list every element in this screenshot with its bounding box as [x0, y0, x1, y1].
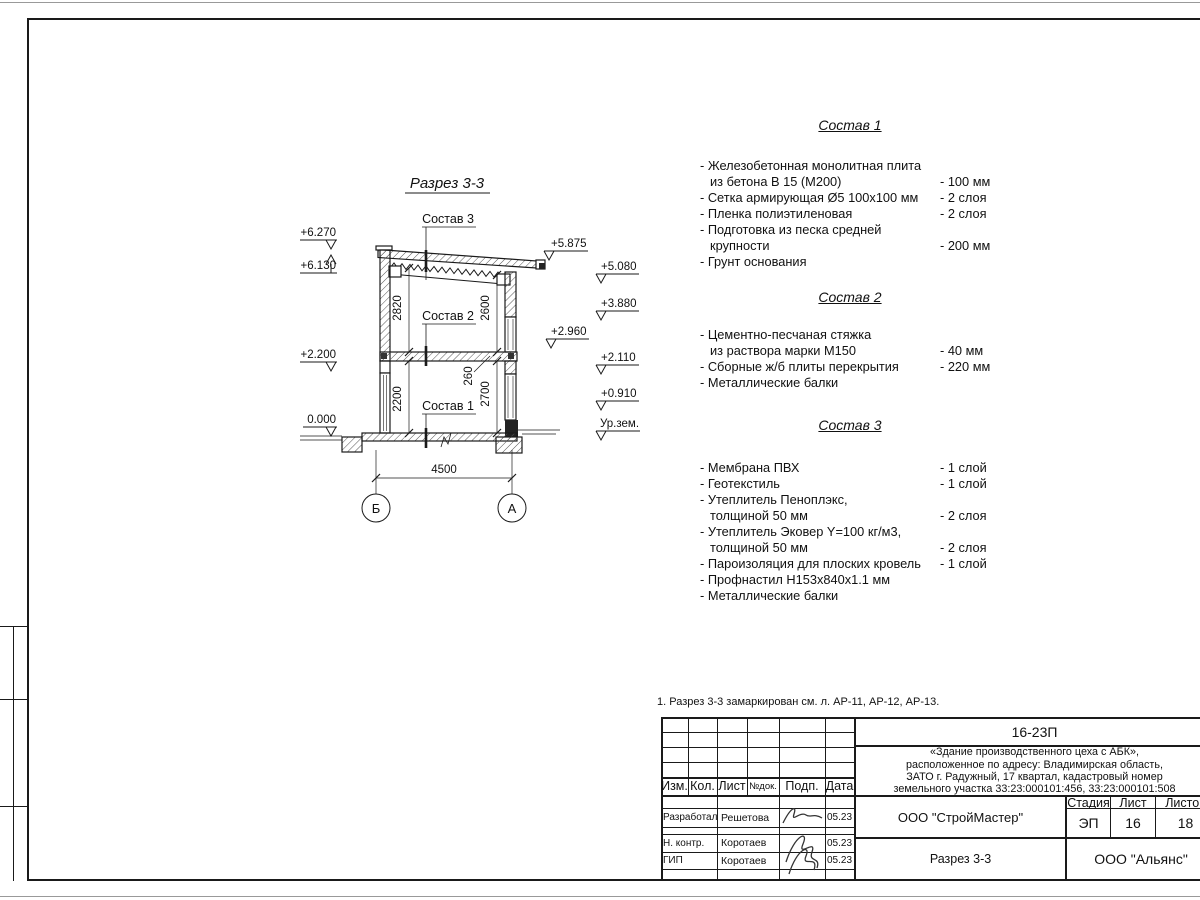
dimension-label: 2200 — [392, 386, 404, 412]
composition-items: - Цементно-песчаная стяжкаиз раствора ма… — [700, 327, 1000, 391]
tb-col-ndok: №док. — [747, 777, 779, 795]
tb-col-kol: Кол. — [688, 777, 717, 795]
dimension-label: 2700 — [480, 381, 492, 407]
tb-role: Н. контр. — [663, 834, 717, 852]
tb-date: 05.23 — [825, 834, 854, 852]
tb-role: ГИП — [663, 852, 717, 869]
composition-item: - Металлические балки — [700, 588, 1000, 604]
composition-item: - Утеплитель Пеноплэкс,толщиной 50 мм- 2… — [700, 492, 1000, 524]
tb-org1: ООО "СтройМастер" — [856, 797, 1065, 837]
tb-col-list: Лист — [717, 777, 747, 795]
tb-description: «Здание производственного цеха с АБК», р… — [856, 747, 1200, 795]
sheet-note: 1. Разрез 3-3 замаркирован см. л. АР-11,… — [657, 696, 939, 708]
elevation-mark: Ур.зем. — [600, 418, 639, 430]
axis-marks — [362, 494, 526, 522]
margin-stamp-line — [0, 806, 27, 807]
elevation-mark: 0.000 — [307, 414, 336, 426]
composition-item: - Подготовка из песка среднейкрупности- … — [700, 222, 1000, 254]
tb-col-podp: Подп. — [779, 777, 825, 795]
tb-sheets-value: 18 — [1156, 808, 1200, 837]
composition-section-3: Состав 3 - Мембрана ПВХ- 1 слой - Геотек… — [700, 416, 1000, 604]
elevation-mark: +2.200 — [301, 349, 337, 361]
drawing-title: Разрез 3-3 — [410, 175, 485, 192]
composition-title: Состав 3 — [700, 416, 1000, 434]
elevation-mark: +5.080 — [601, 261, 637, 273]
dimension-label: 260 — [463, 366, 475, 385]
dimension-label: 2820 — [392, 295, 404, 321]
tb-org2: ООО "Альянс" — [1067, 839, 1200, 879]
elevation-mark: +2.110 — [601, 352, 636, 364]
signature — [781, 803, 825, 829]
composition-leaders: Состав 3 Состав 2 Состав 1 — [422, 212, 476, 448]
composition-item: - Пленка полиэтиленовая- 2 слоя — [700, 206, 1000, 222]
tb-sheet-value: 16 — [1111, 808, 1155, 837]
elevation-mark: +6.270 — [301, 227, 337, 239]
composition-item: - Цементно-песчаная стяжкаиз раствора ма… — [700, 327, 1000, 359]
paper-edge-bottom — [0, 896, 1200, 897]
frame-top — [27, 18, 1200, 20]
composition-items: - Мембрана ПВХ- 1 слой - Геотекстиль- 1 … — [700, 460, 1000, 604]
margin-stamp-line — [0, 626, 27, 627]
section-drawing: Разрез 3-3 — [280, 165, 670, 535]
tb-role: Разработал — [663, 808, 717, 827]
tb-date: 05.23 — [825, 852, 854, 869]
dimension-label: 2600 — [480, 295, 492, 321]
signature — [781, 830, 825, 880]
elevation-mark: +2.960 — [551, 326, 587, 338]
composition-section-2: Состав 2 - Цементно-песчаная стяжкаиз ра… — [700, 288, 1000, 391]
tb-name: Коротаев — [721, 834, 779, 852]
composition-item: - Утеплитель Эковер Y=100 кг/м3,толщиной… — [700, 524, 1000, 556]
tb-stage-value: ЭП — [1067, 808, 1110, 837]
axis-label: Б — [372, 501, 381, 516]
composition-item: - Мембрана ПВХ- 1 слой — [700, 460, 1000, 476]
tb-sheet-label: Лист — [1111, 797, 1155, 808]
composition-title: Состав 2 — [700, 288, 1000, 306]
tb-date: 05.23 — [825, 808, 854, 827]
leader-label: Состав 1 — [422, 399, 474, 413]
dimension-label: 4500 — [431, 464, 457, 476]
margin-stamp-line — [0, 699, 27, 700]
elevation-mark: +5.875 — [551, 238, 587, 250]
composition-items: - Железобетонная монолитная плитаиз бето… — [700, 158, 1000, 270]
leader-label: Состав 3 — [422, 212, 474, 226]
composition-item: - Железобетонная монолитная плитаиз бето… — [700, 158, 1000, 190]
tb-col-izm: Изм. — [661, 777, 688, 795]
frame-left — [27, 18, 29, 881]
tb-doc-number: 16-23П — [856, 719, 1200, 745]
composition-item: - Профнастил Н153х840х1.1 мм — [700, 572, 1000, 588]
axis-label: А — [508, 501, 517, 516]
tb-col-data: Дата — [825, 777, 854, 795]
tb-stage-label: Стадия — [1067, 797, 1110, 808]
tb-name: Решетова — [721, 808, 779, 827]
composition-section-1: Состав 1 - Железобетонная монолитная пли… — [700, 116, 1000, 270]
elevation-mark: +6.130 — [301, 260, 337, 272]
composition-item: - Сетка армирующая Ø5 100х100 мм- 2 слоя — [700, 190, 1000, 206]
leader-label: Состав 2 — [422, 309, 474, 323]
tb-sheets-label: Листов — [1156, 797, 1200, 808]
tb-name: Коротаев — [721, 852, 779, 869]
composition-item: - Грунт основания — [700, 254, 1000, 270]
composition-item: - Пароизоляция для плоских кровель- 1 сл… — [700, 556, 1000, 572]
title-block: Изм. Кол. Лист №док. Подп. Дата Разработ… — [661, 717, 1200, 881]
drawing-sheet: Разрез 3-3 — [0, 0, 1200, 900]
composition-item: - Геотекстиль- 1 слой — [700, 476, 1000, 492]
elevation-mark: +3.880 — [601, 298, 637, 310]
composition-title: Состав 1 — [700, 116, 1000, 134]
composition-item: - Сборные ж/б плиты перекрытия- 220 мм — [700, 359, 1000, 375]
composition-item: - Металлические балки — [700, 375, 1000, 391]
elevation-mark: +0.910 — [601, 388, 637, 400]
paper-edge-top — [0, 2, 1200, 3]
tb-view-name: Разрез 3-3 — [856, 839, 1065, 879]
margin-stamp-divider — [13, 626, 14, 881]
building-outline — [300, 246, 560, 453]
